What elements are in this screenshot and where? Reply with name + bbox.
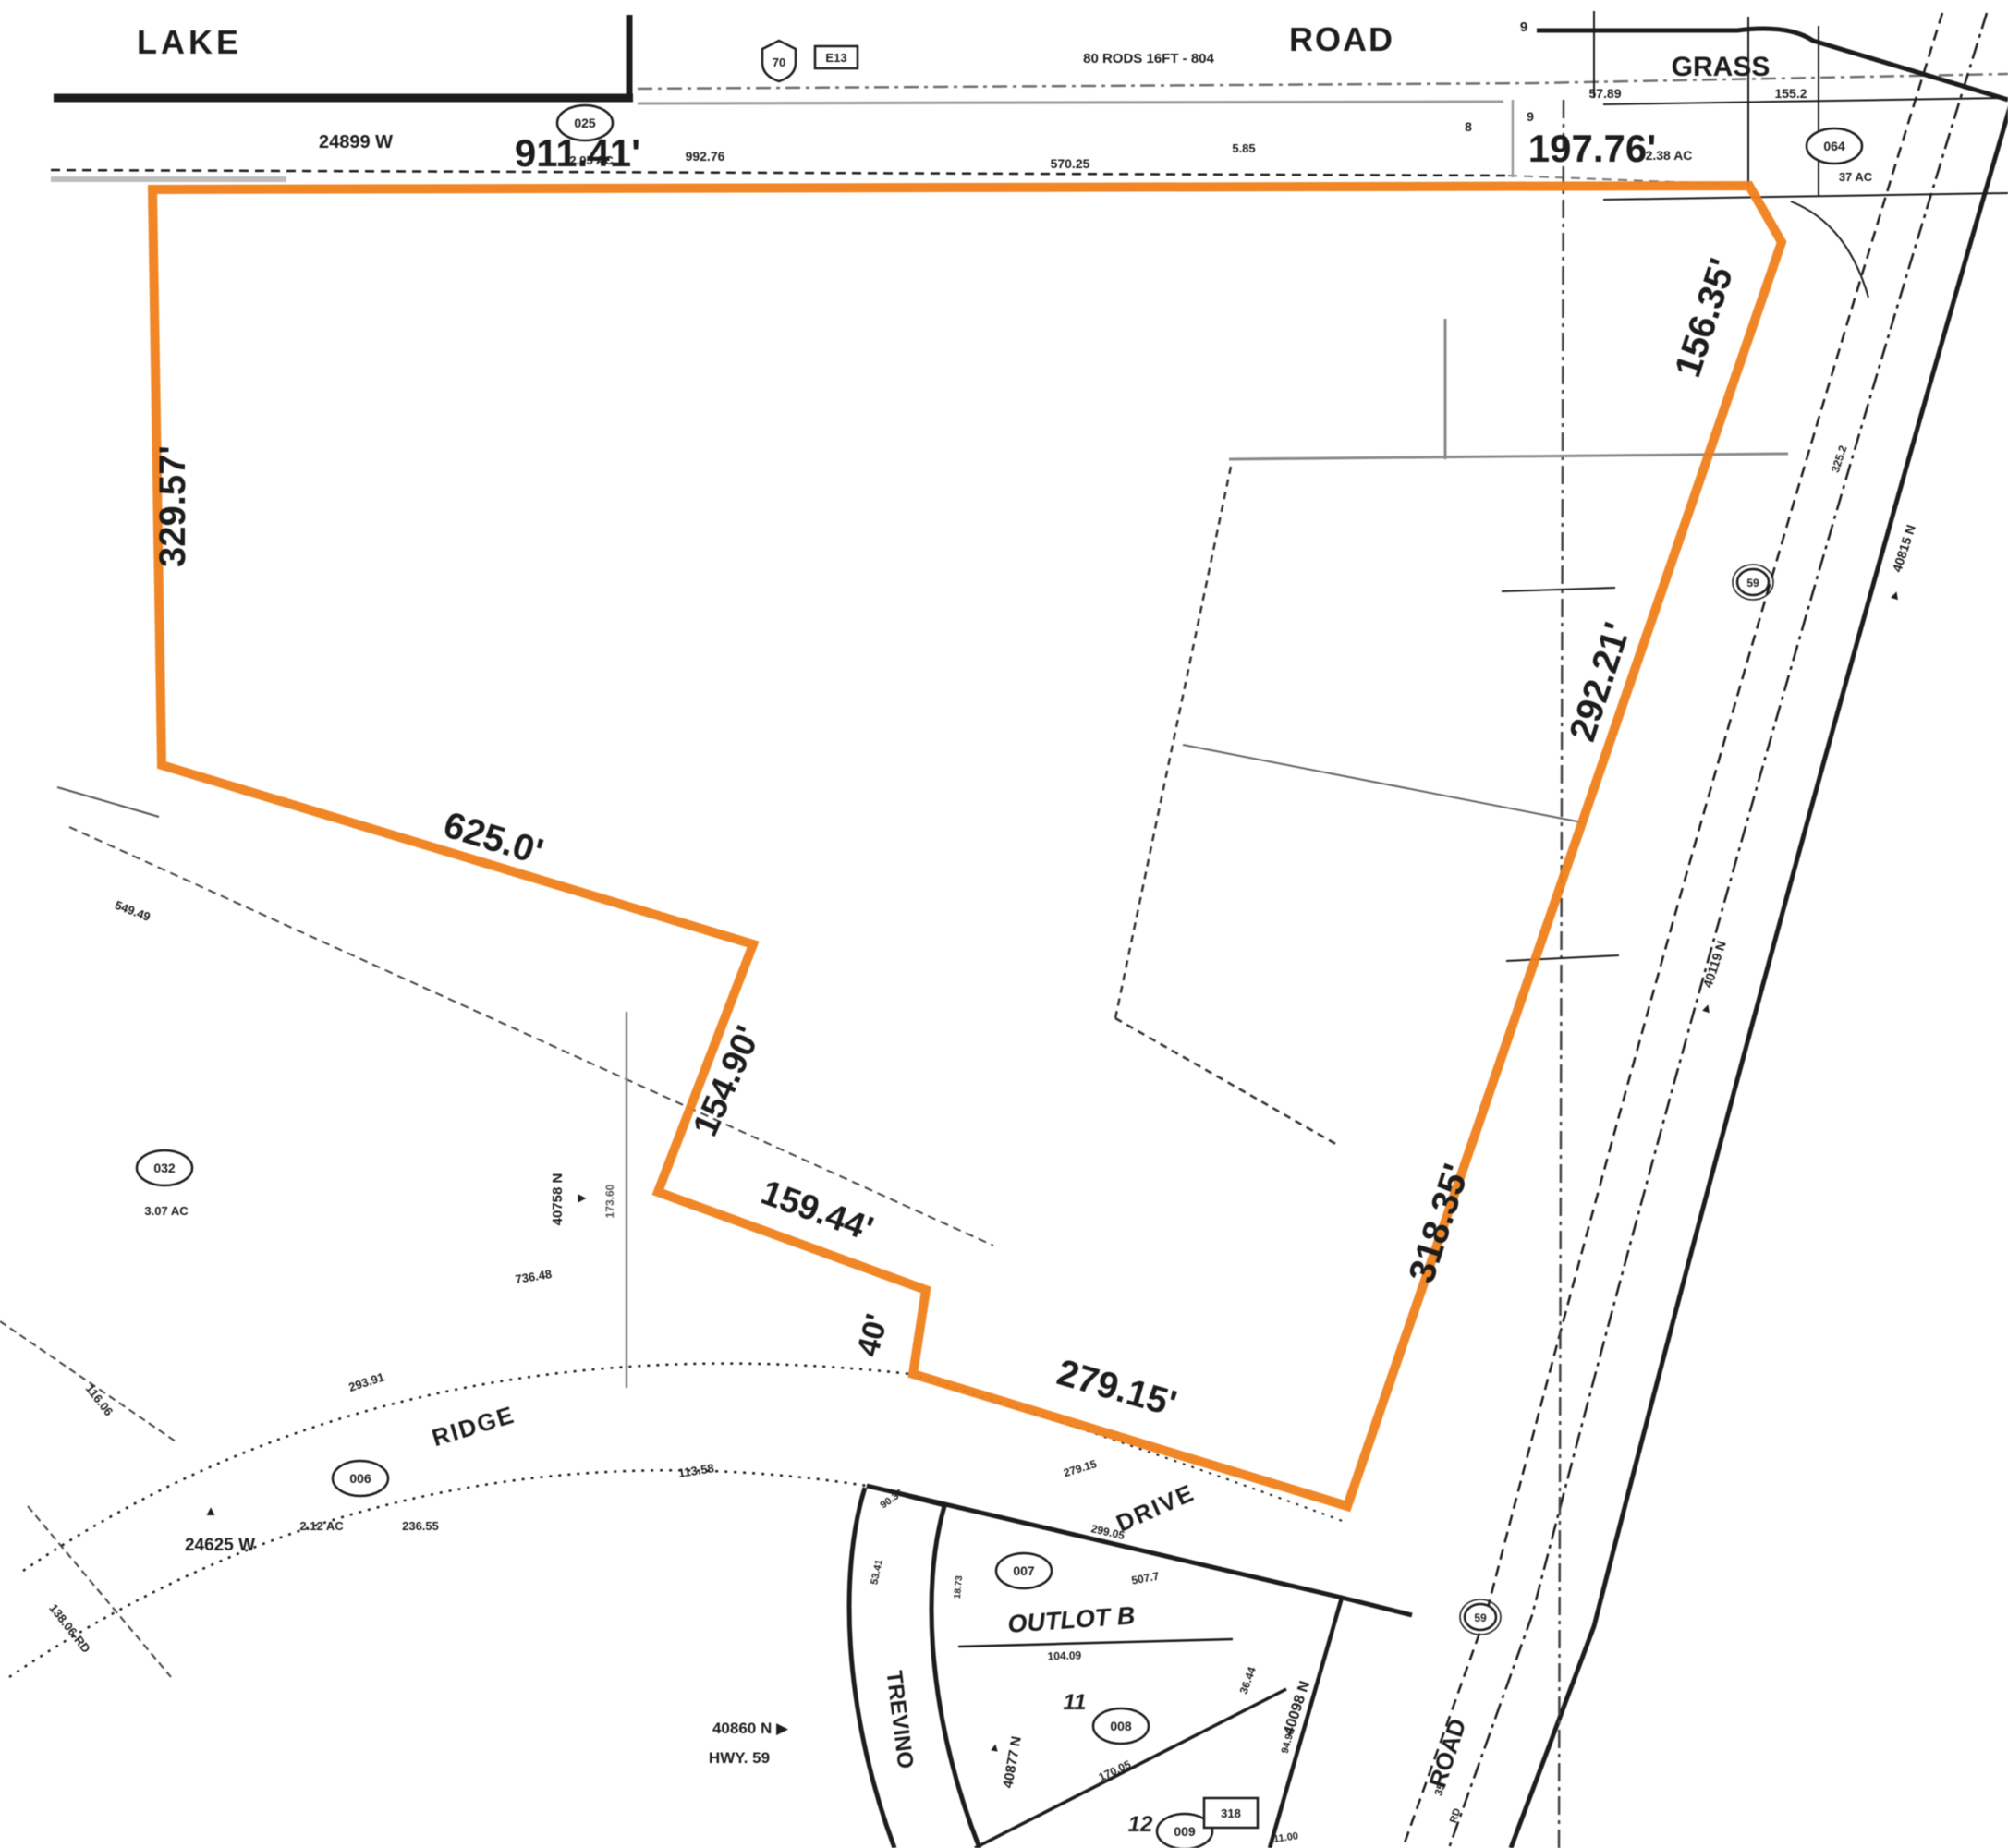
parcel-dimension-label: 279.15' [1053,1352,1181,1425]
marker-number: 009 [1174,1824,1196,1839]
map-label: 507.7 [1130,1570,1160,1587]
map-label: 57.89 [1588,86,1621,101]
map-label: 11.00 [1272,1830,1298,1845]
map-label: 36.44 [1237,1665,1260,1696]
north-arrow-icon: ▲ [1887,585,1904,602]
map-label: 116.06 [83,1381,116,1418]
ridge-south-edge [9,1470,867,1677]
row-south-dashed [51,170,1508,176]
parcel-number-marker: 006 [333,1461,388,1496]
route-shield-number: 70 [773,55,785,69]
map-label: 992.76 [686,149,725,164]
map-label: 570.25 [1051,156,1090,171]
marker-number: 007 [1013,1563,1035,1578]
map-label: 37 AC [1839,170,1873,184]
grass-south-line [1603,193,2008,200]
intersection-arc [1791,201,1868,298]
parcel-dimension-label: 329.57' [152,445,193,567]
map-label: 3.07 AC [144,1204,189,1218]
road-name-drive: DRIVE [1112,1478,1199,1538]
map-label: 18.73 [953,1574,965,1599]
address-24899-w: 24899 W [319,132,393,152]
parcel-number-marker: 59 [1460,1599,1501,1635]
parcel-number-marker: 032 [137,1150,192,1185]
map-label: 138.06-RD [46,1601,93,1656]
survey-marker-icon: ▲ [204,1503,218,1519]
building-south-dashed [1115,1018,1339,1146]
hwy-east-edge-bold [1511,13,2008,1848]
marker-number: 59 [1474,1611,1487,1624]
route-shield-icon: 70 [762,41,796,81]
parcel-dimension-label: 40' [850,1310,895,1360]
map-label: 736.48 [514,1267,553,1286]
address-40758-n: 40758 N [550,1173,566,1226]
hwy-59-label: HWY. 59 [709,1749,770,1767]
outlot-b-label: OUTLOT B [1007,1601,1137,1638]
parcel-number-marker: 025 [557,105,613,140]
map-label: 53.41 [869,1559,884,1586]
subdivision-linework [9,1364,1412,1848]
marker-number: 006 [349,1471,371,1486]
section-line [1559,100,1564,1848]
address-40877-n: 40877 N [1000,1735,1025,1790]
hwy-west-edge-dashed [1403,13,1942,1848]
parcel-number-marker: 008 [1093,1708,1149,1744]
map-label: 170.05 [1097,1757,1133,1783]
map-label: RD [1448,1807,1463,1825]
map-label: 549.49 [113,898,152,924]
map-label: 173.60 [603,1184,616,1218]
road-edge-gray [638,102,1503,103]
section-tick-2 [1506,955,1619,961]
road-name-road: ROAD [1289,20,1394,58]
marker-number: E13 [825,51,846,65]
parcel-number-marker: 007 [996,1553,1052,1588]
map-label: 5.85 [1232,141,1255,155]
trevino-east-edge [931,1506,980,1848]
map-label: 113.58 [677,1461,715,1480]
parcel-dimension-label: 318.35' [1401,1159,1478,1287]
parcel-dimension-label: 197.76' [1528,127,1656,170]
map-label: 8 [1465,119,1472,134]
lot-11-label: 11 [1064,1690,1087,1715]
marker-number: 008 [1110,1719,1132,1733]
west-feeder-dash-1 [0,1321,176,1441]
road-name-trevino: TREVINO [882,1669,919,1769]
inner-lot-line [1183,745,1582,822]
marker-number: 064 [1823,139,1845,153]
parcel-number-marker: 59 [1733,565,1773,600]
road-name-lake: LAKE [137,23,242,61]
top-road-linework [51,11,2008,187]
parcel-dimension-label: 156.35' [1667,253,1744,382]
map-label: 9 [1520,19,1527,35]
map-label: 279.15 [1062,1457,1099,1479]
map-label: 293.91 [347,1369,385,1394]
marker-number: 032 [153,1161,176,1175]
parcel-number-marker: 064 [1807,128,1862,164]
boxed-marker: 318 [1204,1798,1258,1828]
ridge-north-edge [23,1364,910,1571]
trevino-west-edge [849,1488,894,1848]
boxed-marker: E13 [815,46,858,68]
row-gray-bar [51,176,286,182]
map-label: 9 [1527,109,1534,124]
plat-map-canvas: 70 911.41'197.76'156.35'292.21'318.35'32… [0,0,2008,1848]
map-label: 155.2 [1774,86,1807,101]
lot-12-label: 12 [1128,1812,1153,1837]
sw-stub [57,787,159,817]
lot-divider-bold [1270,1598,1342,1848]
map-label: 236.55 [402,1519,439,1533]
section-tick-1 [1502,588,1615,591]
address-40815-n: 40815 N [1889,523,1918,574]
survey-marker-icon: ▲ [988,1739,1002,1755]
address-24625-w: 24625 W [185,1536,255,1555]
road-name-road-right: ROAD [1423,1715,1471,1791]
map-label: 2.12 AC [299,1519,344,1533]
road-note: 80 RODS 16FT - 804 [1083,51,1214,67]
north-arrow-icon: ▲ [1698,998,1715,1015]
marker-number: 59 [1746,577,1759,590]
map-label: 2.95 AC [569,153,614,167]
road-name-ridge: RIDGE [429,1401,518,1453]
diag-549-dashed [69,827,993,1246]
address-40119-n: 40119 N [1700,939,1729,990]
pointer-icon: ▶ [578,1191,587,1204]
outlot-south-line [958,1639,1233,1647]
plat-map-page: 70 911.41'197.76'156.35'292.21'318.35'32… [0,0,2008,1848]
marker-number: 025 [574,115,596,130]
road-name-grass: GRASS [1672,52,1771,82]
map-label: 2.38 AC [1646,148,1693,163]
address-40860-n: 40860 N ▶ [712,1720,789,1737]
subject-parcel-outline[interactable] [152,186,1782,1506]
building-west-dashed [1115,467,1231,1018]
map-label: 325.2 [1829,444,1850,474]
marker-number: 318 [1221,1806,1241,1820]
map-label: 104.09 [1047,1648,1081,1662]
